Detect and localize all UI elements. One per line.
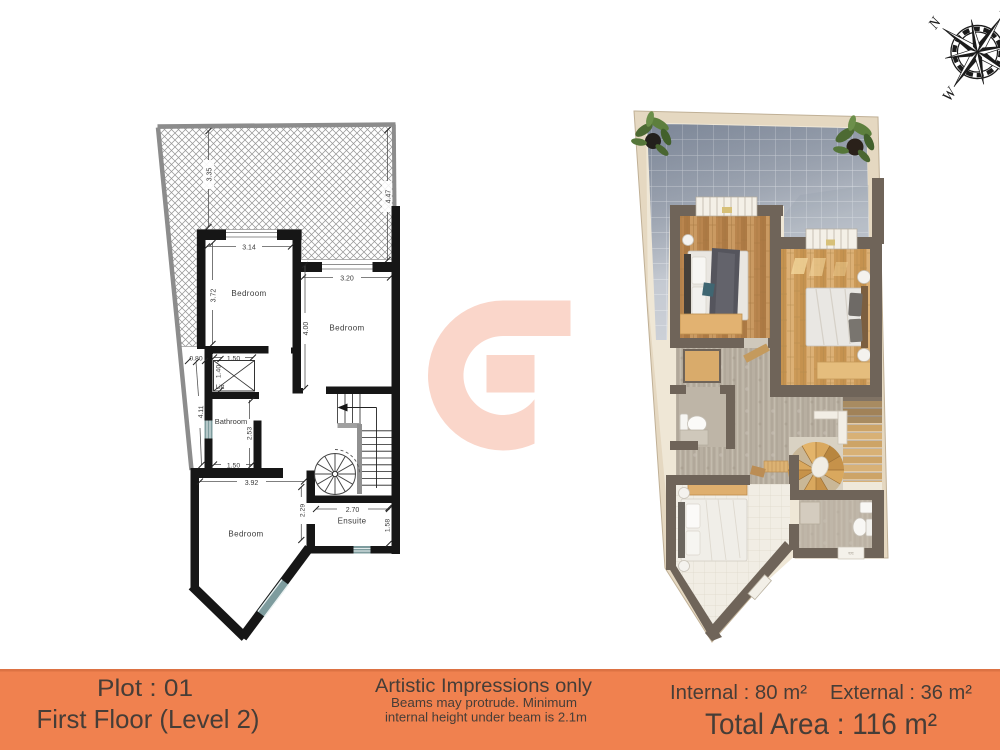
svg-text:External : 36 m²: External : 36 m²	[830, 682, 972, 704]
svg-text:3.14: 3.14	[242, 245, 256, 252]
svg-text:1.58: 1.58	[385, 519, 392, 532]
svg-text:Total Area : 116 m²: Total Area : 116 m²	[705, 708, 937, 741]
svg-text:Artistic Impressions only: Artistic Impressions only	[375, 676, 593, 697]
svg-text:3.72: 3.72	[211, 289, 218, 303]
svg-text:Internal : 80 m²: Internal : 80 m²	[670, 682, 807, 704]
svg-text:internal height under beam is: internal height under beam is 2.1m	[385, 710, 587, 725]
svg-text:4.11: 4.11	[198, 405, 205, 418]
svg-text:1.40: 1.40	[216, 365, 223, 378]
svg-text:Bedroom: Bedroom	[228, 530, 263, 539]
svg-text:≈≈: ≈≈	[848, 551, 854, 557]
svg-text:Ensuite: Ensuite	[338, 517, 367, 526]
svg-text:Bathroom: Bathroom	[215, 417, 248, 426]
svg-text:3.92: 3.92	[245, 480, 259, 487]
svg-text:Bedroom: Bedroom	[329, 324, 364, 333]
svg-text:4.00: 4.00	[303, 322, 310, 336]
svg-text:2.53: 2.53	[247, 427, 254, 440]
svg-text:1.50: 1.50	[227, 356, 240, 363]
svg-text:Plot : 01: Plot : 01	[97, 675, 193, 702]
svg-text:First Floor (Level 2): First Floor (Level 2)	[37, 704, 260, 734]
svg-text:4.47: 4.47	[386, 190, 393, 204]
svg-text:2.70: 2.70	[346, 507, 360, 514]
svg-text:3.20: 3.20	[340, 276, 354, 283]
svg-text:2.29: 2.29	[300, 504, 307, 517]
svg-text:Bedroom: Bedroom	[231, 289, 266, 298]
svg-text:3.35: 3.35	[207, 168, 214, 182]
svg-text:Beams may protrude. Minimum: Beams may protrude. Minimum	[391, 695, 577, 710]
